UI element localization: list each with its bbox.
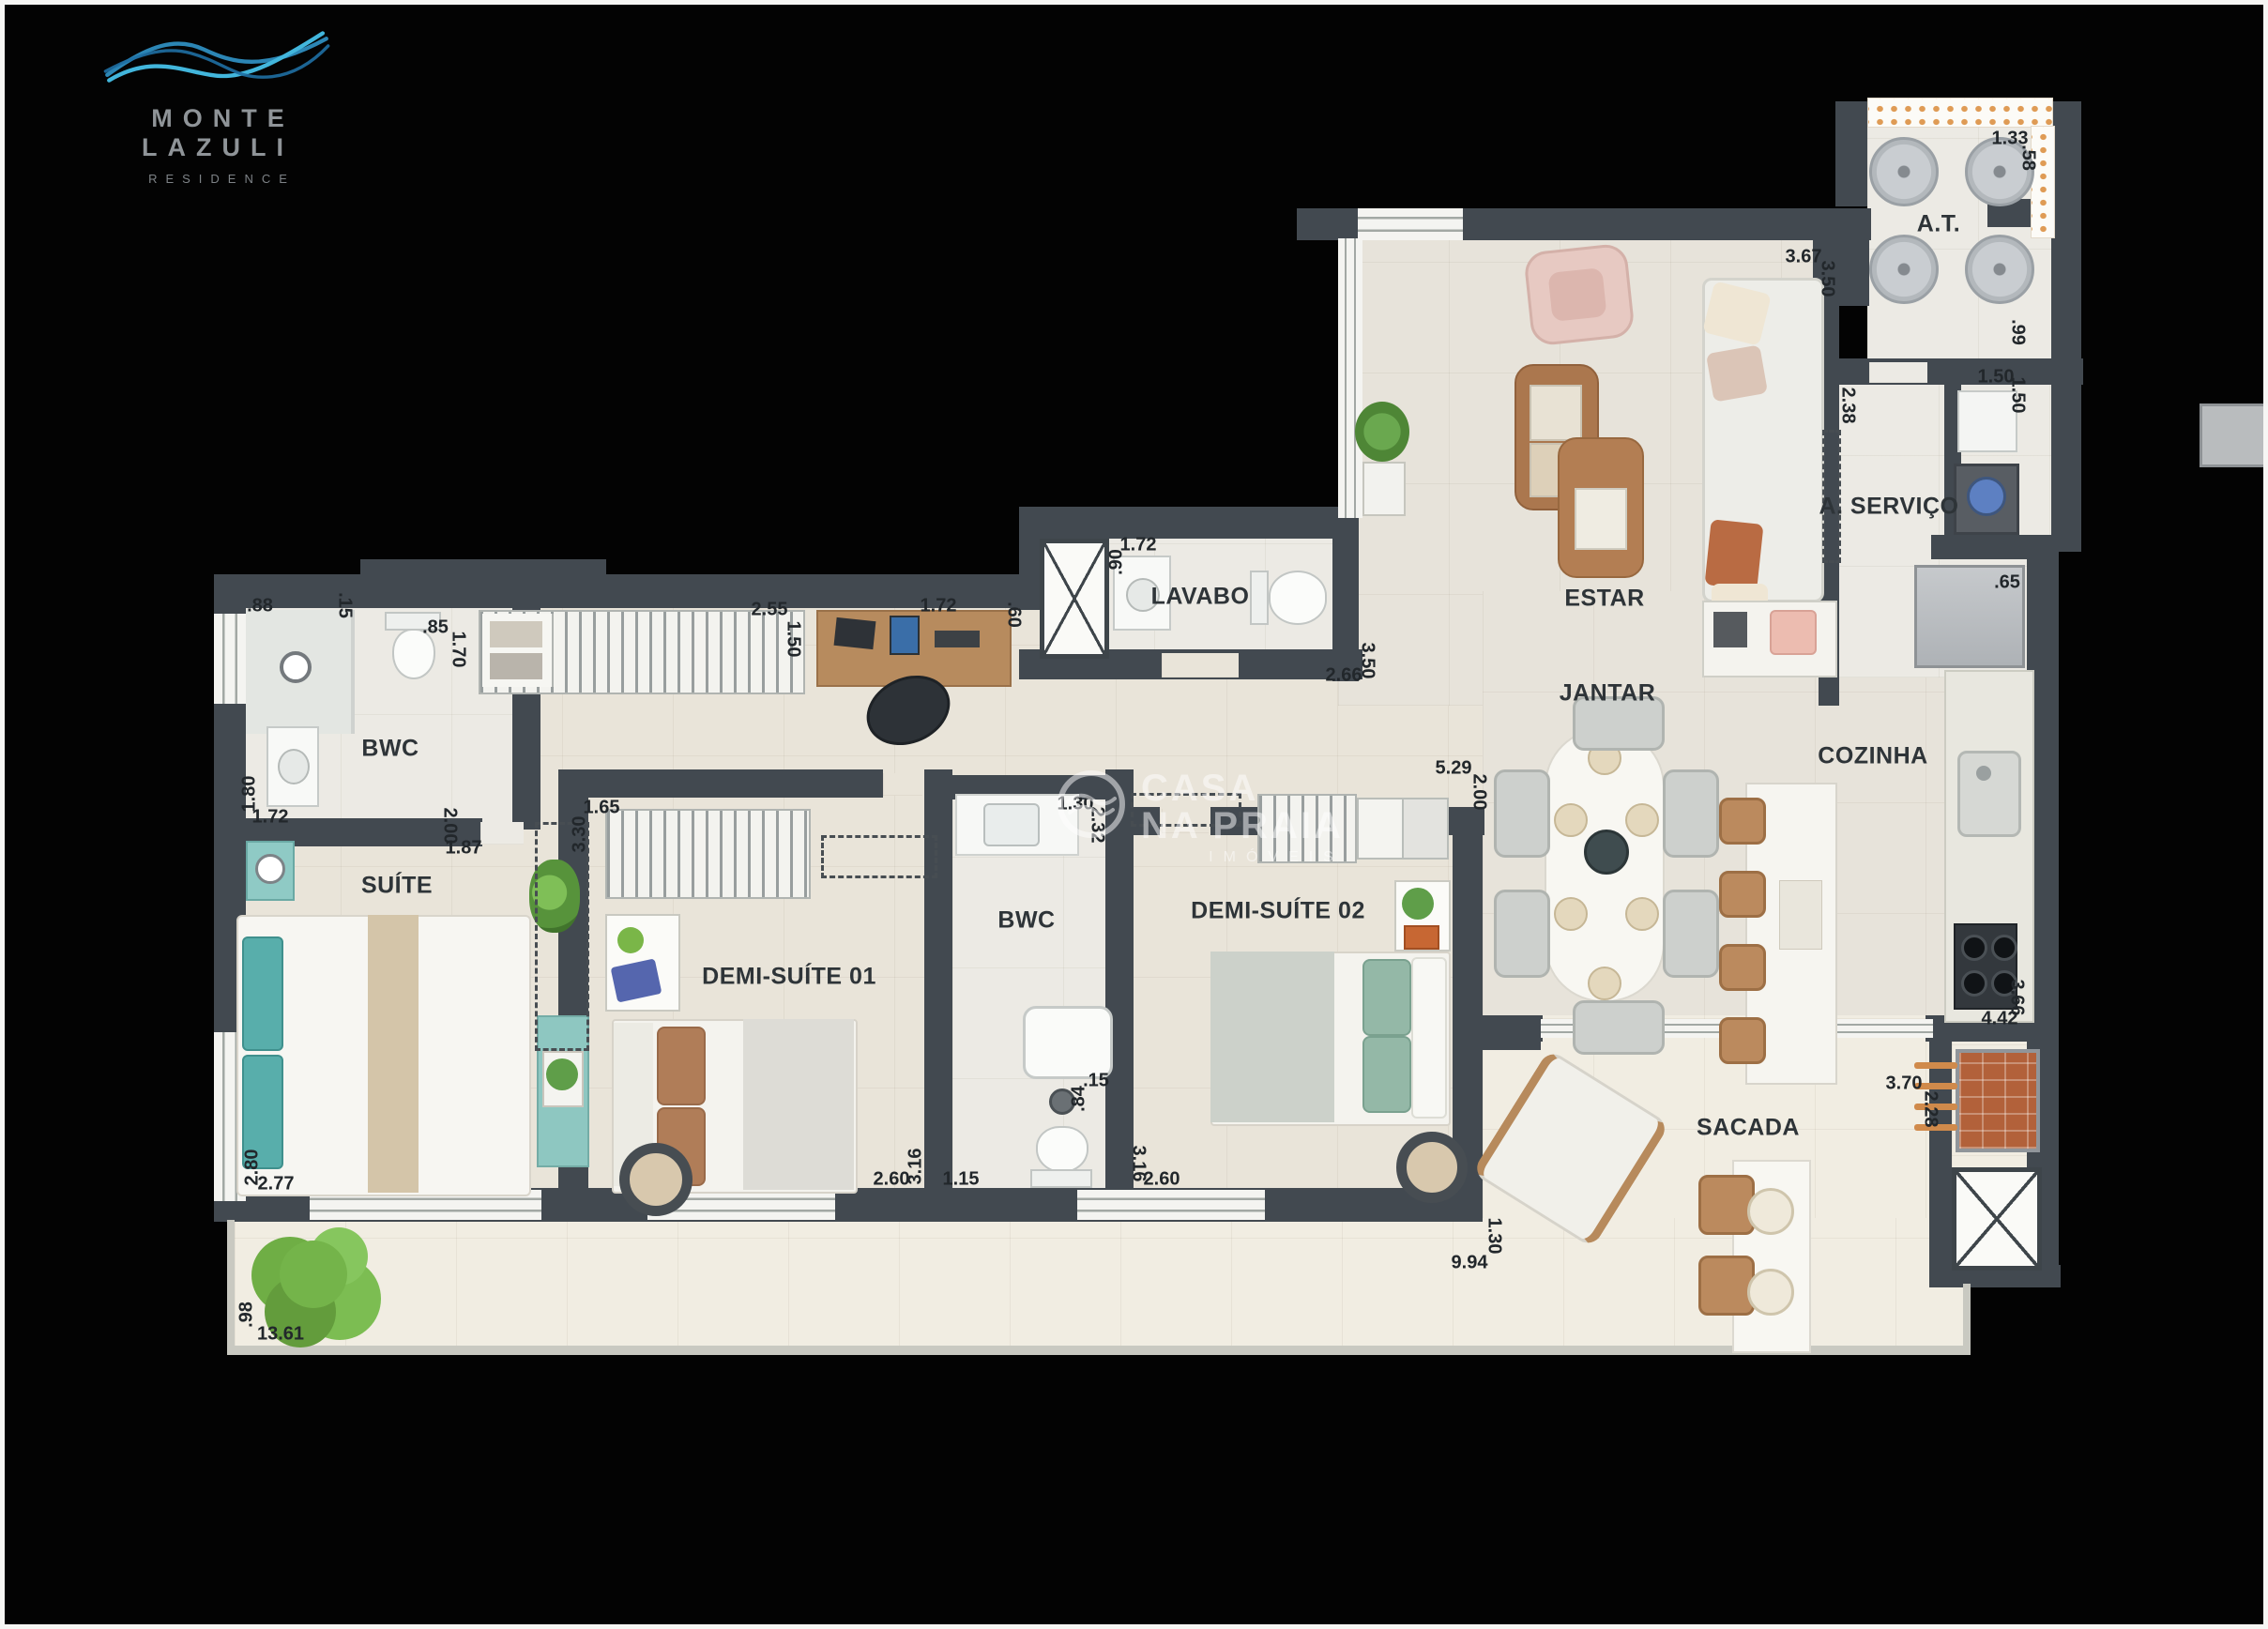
toilet-tank <box>1030 1169 1092 1188</box>
room-label-estar: ESTAR <box>1564 586 1644 613</box>
room-label-a-servi-o: A. SERVIÇO <box>1819 494 1958 521</box>
dimension-label: 1.30 <box>1484 1218 1505 1255</box>
brand-tagline: RESIDENCE <box>60 172 375 186</box>
plate <box>1588 967 1621 1000</box>
chair <box>1663 769 1719 858</box>
chair <box>1663 890 1719 978</box>
shower-head-icon <box>280 651 312 683</box>
dimension-label: 3.50 <box>1817 261 1838 297</box>
dimension-label: 2.60 <box>1144 1169 1180 1191</box>
bathtub <box>1023 1006 1113 1079</box>
table-tray <box>1575 488 1627 550</box>
dashed-outline <box>821 835 937 878</box>
burner-icon <box>1961 935 1987 961</box>
wall <box>2051 101 2081 552</box>
utility-box <box>2200 403 2268 467</box>
plate <box>1625 803 1659 837</box>
bed-pillow <box>242 936 283 1051</box>
bed-pillow <box>657 1027 706 1105</box>
shaft <box>1952 1167 2042 1271</box>
wave-lines-icon <box>96 19 340 96</box>
sofa-pillow <box>1706 344 1768 402</box>
door-opening <box>1869 362 1927 383</box>
bbq-grill <box>1956 1049 2040 1152</box>
dimension-label: 1.72 <box>921 596 957 617</box>
room-label-su-te: SUÍTE <box>361 873 433 900</box>
room-label-bwc: BWC <box>361 736 419 763</box>
plate <box>1554 897 1588 931</box>
dimension-label: .60 <box>1003 601 1025 628</box>
plate <box>1554 803 1588 837</box>
bed-runner <box>368 915 419 1193</box>
railing <box>227 1346 1971 1355</box>
plate <box>1747 1188 1794 1235</box>
decor-frame <box>1404 925 1439 950</box>
dimension-label: 1.72 <box>252 807 289 829</box>
plant-icon <box>546 1058 578 1090</box>
dimension-label: .84 <box>1069 1086 1090 1112</box>
sofa-pillow <box>1704 519 1763 589</box>
wall <box>360 559 606 574</box>
shelf <box>1402 798 1449 860</box>
dimension-label: .99 <box>2007 319 2029 345</box>
armchair-seat <box>1547 267 1606 322</box>
window <box>1077 1190 1265 1220</box>
washer-drum-icon <box>1967 477 2006 516</box>
stool <box>1719 871 1766 918</box>
wall <box>924 769 952 1194</box>
railing <box>1963 1284 1971 1349</box>
dimension-label: 2.55 <box>752 600 788 621</box>
dimension-label: 1.87 <box>446 838 482 860</box>
watermark-text: CASA NA PRAIA IMÓVEIS <box>1141 769 1344 866</box>
window <box>1358 208 1463 240</box>
floor-plan-page: MONTE LAZULI RESIDENCE BWCSUÍTEDEMI-SUÍT… <box>0 0 2268 1629</box>
permeable-strip <box>2031 126 2055 238</box>
toilet-bowl <box>1269 571 1327 625</box>
dimension-label: 1.70 <box>448 632 469 668</box>
window <box>214 614 246 704</box>
dimension-label: 1.50 <box>2007 377 2029 414</box>
shelf-item <box>490 621 542 647</box>
balcony-chair <box>1698 1256 1755 1316</box>
dimension-label: 2.00 <box>1469 774 1490 811</box>
console-item <box>1770 610 1817 655</box>
room-label-sacada: SACADA <box>1697 1115 1800 1142</box>
shaft <box>1040 539 1109 659</box>
sink-basin <box>1957 751 2021 837</box>
watermark-line-3: IMÓVEIS <box>1141 849 1344 866</box>
plant-icon <box>1402 888 1434 920</box>
dimension-label: 2.38 <box>1837 388 1859 424</box>
chair <box>1573 1000 1665 1055</box>
stool <box>1719 798 1766 845</box>
bed-pillow <box>1362 1036 1411 1113</box>
dimension-label: 2.77 <box>258 1174 295 1195</box>
balcony-chair <box>1698 1175 1755 1235</box>
ac-unit-icon <box>1869 137 1939 206</box>
sink-basin <box>278 749 310 784</box>
dimension-label: 3.66 <box>2006 980 2028 1016</box>
dimension-label: .65 <box>1994 572 2020 594</box>
chair <box>1494 769 1550 858</box>
ac-unit-icon <box>1965 235 2034 304</box>
door-opening <box>1162 653 1239 677</box>
table-art <box>1530 385 1582 441</box>
dimension-label: 1.15 <box>943 1169 980 1191</box>
wave-circle-icon <box>1057 769 1126 839</box>
door-opening <box>480 822 524 845</box>
keyboard-icon <box>935 631 980 647</box>
bed-pillow <box>1362 959 1411 1036</box>
tree-icon <box>280 1241 347 1308</box>
dimension-label: 3.70 <box>1886 1073 1923 1095</box>
wall <box>1835 101 1867 206</box>
toilet-bowl <box>1036 1126 1088 1173</box>
dimension-label: 5.29 <box>1436 758 1472 780</box>
burner-icon <box>1991 935 2017 961</box>
wall <box>558 769 883 798</box>
bed-blanket <box>743 1019 854 1190</box>
plate <box>1625 897 1659 931</box>
dimension-label: .58 <box>2017 145 2039 171</box>
skewer <box>1914 1062 1957 1069</box>
plant-pot <box>1362 462 1406 516</box>
watermark-line-2: NA PRAIA <box>1141 807 1344 845</box>
plant-icon <box>1355 402 1409 462</box>
room-label-demi-su-te-01: DEMI-SUÍTE 01 <box>702 964 876 991</box>
dimension-label: .85 <box>422 617 449 639</box>
centerpiece <box>1584 830 1629 875</box>
wall <box>1453 807 1483 1195</box>
brand-name: MONTE LAZULI <box>60 104 375 162</box>
bed-pillow <box>1411 957 1447 1119</box>
dimension-label: 9.94 <box>1452 1253 1488 1274</box>
shelf <box>1357 798 1404 860</box>
laptop-icon <box>834 617 876 649</box>
room-label-jantar: JANTAR <box>1560 680 1656 708</box>
wardrobe <box>605 809 811 899</box>
faucet-icon <box>1976 766 1991 781</box>
dashed-outline <box>535 822 589 1051</box>
watermark-line-1: CASA <box>1141 769 1344 807</box>
tablet-icon <box>890 616 920 655</box>
permeable-strip <box>1867 98 2053 128</box>
plate <box>1747 1269 1794 1316</box>
lamp-icon <box>255 854 285 884</box>
room-label-bwc: BWC <box>997 907 1055 935</box>
door-opening <box>883 773 922 796</box>
chair <box>1494 890 1550 978</box>
wall <box>1019 507 1359 539</box>
burner-icon <box>1961 970 1987 997</box>
stool <box>1719 944 1766 991</box>
room-label-demi-su-te-02: DEMI-SUÍTE 02 <box>1191 898 1365 925</box>
dimension-label: 3.16 <box>906 1149 927 1185</box>
pouf <box>1396 1132 1468 1203</box>
ac-unit-icon <box>1869 235 1939 304</box>
dimension-label: 3.30 <box>570 816 591 853</box>
room-label-lavabo: LAVABO <box>1151 584 1250 611</box>
toilet-tank <box>1250 571 1269 625</box>
dimension-label: 3.50 <box>1357 643 1378 679</box>
dimension-label: .15 <box>334 592 356 618</box>
brand-logo: MONTE LAZULI RESIDENCE <box>60 19 375 186</box>
room-label-a-t-: A.T. <box>1917 211 1960 238</box>
sink-basin <box>983 803 1040 846</box>
wall <box>1931 535 2055 559</box>
dimension-label: .98 <box>236 1302 258 1328</box>
watermark: CASA NA PRAIA IMÓVEIS <box>1057 769 1344 866</box>
island-decor <box>1779 880 1822 950</box>
decor-ball <box>617 927 644 953</box>
window <box>1338 238 1362 518</box>
stool <box>1719 1017 1766 1064</box>
wall <box>1483 1015 1543 1042</box>
dimension-label: 1.50 <box>783 621 804 658</box>
dimension-label: 13.61 <box>257 1324 304 1346</box>
dimension-label: .88 <box>247 596 273 617</box>
console-item <box>1713 612 1747 647</box>
pouf <box>619 1143 693 1216</box>
dimension-label: .90 <box>1106 549 1128 575</box>
room-label-cozinha: COZINHA <box>1818 743 1927 770</box>
dimension-label: 2.28 <box>1920 1091 1941 1128</box>
shelf-item <box>490 653 542 679</box>
railing <box>227 1220 235 1353</box>
wall <box>1929 1152 1952 1271</box>
bed-blanket <box>1210 952 1334 1122</box>
